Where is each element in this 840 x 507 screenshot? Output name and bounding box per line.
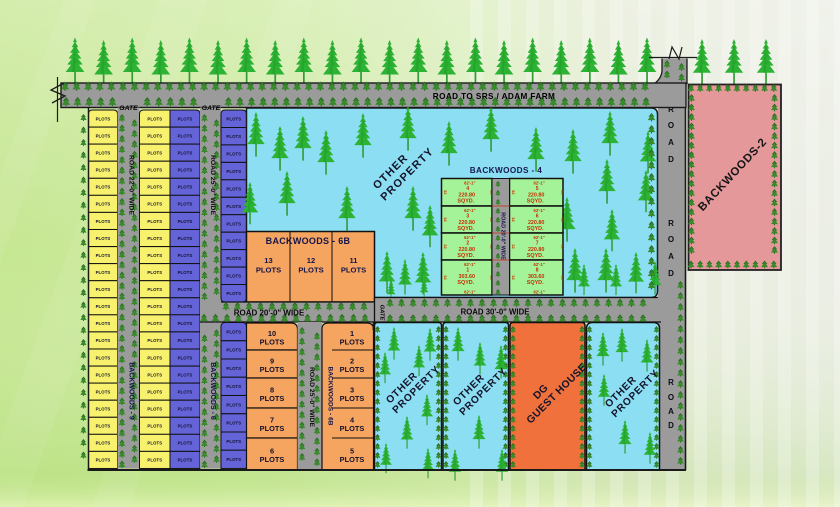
svg-text:PLOTS: PLOTS [226,457,241,462]
svg-text:ROAD 25'-0" WIDE: ROAD 25'-0" WIDE [308,367,315,427]
svg-text:220.80: 220.80 [459,247,476,253]
svg-text:PLOTS: PLOTS [147,270,162,275]
svg-text:BACKWOODS - 6B: BACKWOODS - 6B [266,236,351,246]
svg-text:220.80: 220.80 [459,192,476,198]
svg-text:PLOTS: PLOTS [96,372,111,377]
svg-text:3: 3 [466,214,469,220]
svg-text:PLOTS: PLOTS [96,151,111,156]
svg-text:PLOTS: PLOTS [226,329,241,334]
svg-text:PLOTS: PLOTS [96,202,111,207]
svg-text:PLOTS: PLOTS [260,424,285,433]
svg-text:220.80: 220.80 [528,220,545,226]
svg-text:PLOTS: PLOTS [147,168,162,173]
svg-text:PLOTS: PLOTS [96,253,111,258]
svg-text:PLOTS: PLOTS [178,168,193,173]
svg-text:D: D [668,155,674,164]
svg-text:PLOTS: PLOTS [178,253,193,258]
svg-text:PLOTS: PLOTS [96,458,111,463]
svg-text:SQYD.: SQYD. [527,253,544,259]
svg-text:PLOTS: PLOTS [147,253,162,258]
svg-text:PLOTS: PLOTS [147,304,162,309]
svg-text:PLOTS: PLOTS [147,116,162,121]
svg-text:PLOTS: PLOTS [226,421,241,426]
svg-text:SQYD.: SQYD. [527,226,544,232]
svg-text:PLOTS: PLOTS [178,458,193,463]
svg-text:SQYD.: SQYD. [457,253,474,259]
svg-text:12: 12 [307,256,315,265]
svg-text:62'-1": 62'-1" [464,208,475,213]
svg-text:32: 32 [443,244,448,249]
svg-text:32: 32 [511,275,516,280]
svg-text:220.80: 220.80 [528,247,545,253]
svg-text:PLOTS: PLOTS [226,169,241,174]
svg-text:PLOTS: PLOTS [147,133,162,138]
svg-text:PLOTS: PLOTS [226,256,241,261]
svg-text:PLOTS: PLOTS [178,304,193,309]
svg-text:PLOTS: PLOTS [226,204,241,209]
svg-text:PLOTS: PLOTS [226,186,241,191]
svg-text:PLOTS: PLOTS [96,407,111,412]
svg-text:PLOTS: PLOTS [226,384,241,389]
svg-text:D: D [668,421,674,430]
svg-text:11: 11 [349,256,358,265]
svg-text:303.60: 303.60 [459,274,476,280]
svg-text:PLOTS: PLOTS [147,372,162,377]
svg-text:PLOTS: PLOTS [96,116,111,121]
svg-text:PLOTS: PLOTS [147,355,162,360]
svg-text:PLOTS: PLOTS [298,266,323,275]
svg-text:PLOTS: PLOTS [226,348,241,353]
svg-text:32: 32 [561,217,566,222]
svg-text:PLOTS: PLOTS [178,202,193,207]
svg-text:32: 32 [443,217,448,222]
svg-text:PLOTS: PLOTS [178,338,193,343]
svg-text:PLOTS: PLOTS [147,390,162,395]
svg-text:PLOTS: PLOTS [178,133,193,138]
svg-text:O: O [668,393,674,402]
svg-text:PLOTS: PLOTS [340,424,365,433]
svg-text:GATE: GATE [379,305,385,322]
svg-text:62'-1": 62'-1" [534,181,545,186]
svg-text:PLOTS: PLOTS [226,366,241,371]
svg-text:O: O [668,235,674,244]
svg-text:PLOTS: PLOTS [260,338,285,347]
svg-text:PLOTS: PLOTS [147,219,162,224]
svg-text:ROAD 22'-0" WIDE: ROAD 22'-0" WIDE [128,155,135,215]
svg-text:PLOTS: PLOTS [341,266,366,275]
svg-text:R: R [668,378,674,387]
svg-text:SQYD.: SQYD. [457,199,474,205]
svg-text:32: 32 [511,190,516,195]
svg-text:ROAD 25'-0" WIDE: ROAD 25'-0" WIDE [209,155,216,215]
svg-text:PLOTS: PLOTS [226,117,241,122]
svg-text:PLOTS: PLOTS [226,439,241,444]
svg-text:ROAD TO SRS / ADAM FARM: ROAD TO SRS / ADAM FARM [433,92,555,101]
svg-text:13: 13 [264,256,272,265]
svg-text:PLOTS: PLOTS [96,168,111,173]
svg-text:PLOTS: PLOTS [178,116,193,121]
svg-text:62'-1": 62'-1" [534,290,545,295]
svg-text:GATE: GATE [119,105,138,112]
svg-text:PLOTS: PLOTS [96,236,111,241]
svg-text:2: 2 [466,241,469,247]
svg-text:PLOTS: PLOTS [178,270,193,275]
svg-text:BACKWOODS - 9: BACKWOODS - 9 [128,362,135,420]
svg-text:PLOTS: PLOTS [96,424,111,429]
svg-text:D: D [668,269,674,278]
svg-text:303.60: 303.60 [528,274,545,280]
svg-text:PLOTS: PLOTS [256,266,281,275]
svg-text:PLOTS: PLOTS [226,151,241,156]
svg-text:62'-1": 62'-1" [464,262,475,267]
svg-text:62'-1": 62'-1" [464,181,475,186]
svg-text:PLOTS: PLOTS [178,287,193,292]
svg-text:PLOTS: PLOTS [96,185,111,190]
svg-text:PLOTS: PLOTS [178,390,193,395]
svg-text:PLOTS: PLOTS [147,338,162,343]
svg-text:PLOTS: PLOTS [226,291,241,296]
svg-text:PLOTS: PLOTS [340,394,365,403]
svg-text:8: 8 [536,268,539,274]
svg-text:PLOTS: PLOTS [178,236,193,241]
svg-text:SQYD.: SQYD. [457,280,474,286]
svg-text:ROAD 30'-0" WIDE: ROAD 30'-0" WIDE [461,308,530,317]
svg-text:PLOTS: PLOTS [340,365,365,374]
svg-text:PLOTS: PLOTS [147,458,162,463]
svg-text:SQYD.: SQYD. [457,226,474,232]
svg-text:PLOTS: PLOTS [96,390,111,395]
svg-text:O: O [668,121,674,130]
svg-text:PLOTS: PLOTS [96,441,111,446]
svg-text:1: 1 [466,268,469,274]
svg-text:PLOTS: PLOTS [147,407,162,412]
svg-text:SQYD.: SQYD. [527,199,544,205]
svg-text:PLOTS: PLOTS [260,394,285,403]
svg-text:PLOTS: PLOTS [178,424,193,429]
svg-text:PLOTS: PLOTS [178,441,193,446]
svg-text:PLOTS: PLOTS [178,219,193,224]
svg-text:PLOTS: PLOTS [178,185,193,190]
svg-text:62'-1": 62'-1" [534,262,545,267]
svg-text:4: 4 [466,186,469,192]
svg-text:PLOTS: PLOTS [260,365,285,374]
svg-text:PLOTS: PLOTS [147,202,162,207]
svg-text:6: 6 [536,214,539,220]
svg-text:220.80: 220.80 [459,220,476,226]
svg-text:PLOTS: PLOTS [147,424,162,429]
svg-text:PLOTS: PLOTS [178,372,193,377]
svg-text:PLOTS: PLOTS [178,321,193,326]
svg-text:32: 32 [443,275,448,280]
svg-text:62'-1": 62'-1" [464,290,475,295]
svg-text:32: 32 [511,217,516,222]
svg-text:PLOTS: PLOTS [226,239,241,244]
svg-text:ROAD 20'-0" WIDE: ROAD 20'-0" WIDE [234,309,305,318]
svg-text:BACKWOODS - 4: BACKWOODS - 4 [470,166,543,175]
svg-text:BACKWOODS - 6B: BACKWOODS - 6B [327,367,334,426]
svg-text:ROAD 20'-0" WIDE: ROAD 20'-0" WIDE [500,212,506,260]
svg-text:SQYD.: SQYD. [527,280,544,286]
svg-text:PLOTS: PLOTS [96,321,111,326]
svg-text:PLOTS: PLOTS [96,133,111,138]
svg-text:PLOTS: PLOTS [96,219,111,224]
svg-text:PLOTS: PLOTS [147,151,162,156]
svg-text:PLOTS: PLOTS [178,355,193,360]
svg-text:PLOTS: PLOTS [226,221,241,226]
svg-text:A: A [668,407,674,416]
svg-text:R: R [668,219,674,228]
svg-text:PLOTS: PLOTS [96,304,111,309]
svg-text:62'-1": 62'-1" [534,208,545,213]
svg-text:PLOTS: PLOTS [147,185,162,190]
svg-text:GATE: GATE [202,105,221,112]
svg-text:PLOTS: PLOTS [96,287,111,292]
svg-text:PLOTS: PLOTS [340,455,365,464]
svg-text:A: A [668,252,674,261]
svg-text:PLOTS: PLOTS [340,338,365,347]
svg-text:PLOTS: PLOTS [260,455,285,464]
svg-text:PLOTS: PLOTS [147,441,162,446]
svg-text:PLOTS: PLOTS [178,151,193,156]
svg-text:32: 32 [511,244,516,249]
svg-text:PLOTS: PLOTS [147,321,162,326]
svg-text:62'-1": 62'-1" [534,235,545,240]
svg-text:5: 5 [536,186,539,192]
svg-text:A: A [668,138,674,147]
svg-text:32: 32 [561,275,566,280]
svg-text:PLOTS: PLOTS [96,355,111,360]
svg-text:32: 32 [561,244,566,249]
svg-text:PLOTS: PLOTS [178,407,193,412]
svg-text:220.80: 220.80 [528,192,545,198]
svg-text:7: 7 [536,241,539,247]
svg-text:62'-1": 62'-1" [464,235,475,240]
svg-text:PLOTS: PLOTS [96,338,111,343]
svg-text:PLOTS: PLOTS [96,270,111,275]
svg-text:PLOTS: PLOTS [226,402,241,407]
svg-text:PLOTS: PLOTS [147,287,162,292]
svg-text:BACKWOODS - 6: BACKWOODS - 6 [209,362,216,420]
svg-text:PLOTS: PLOTS [147,236,162,241]
svg-text:32: 32 [443,190,448,195]
svg-text:PLOTS: PLOTS [226,274,241,279]
svg-text:PLOTS: PLOTS [226,134,241,139]
svg-text:32: 32 [561,190,566,195]
